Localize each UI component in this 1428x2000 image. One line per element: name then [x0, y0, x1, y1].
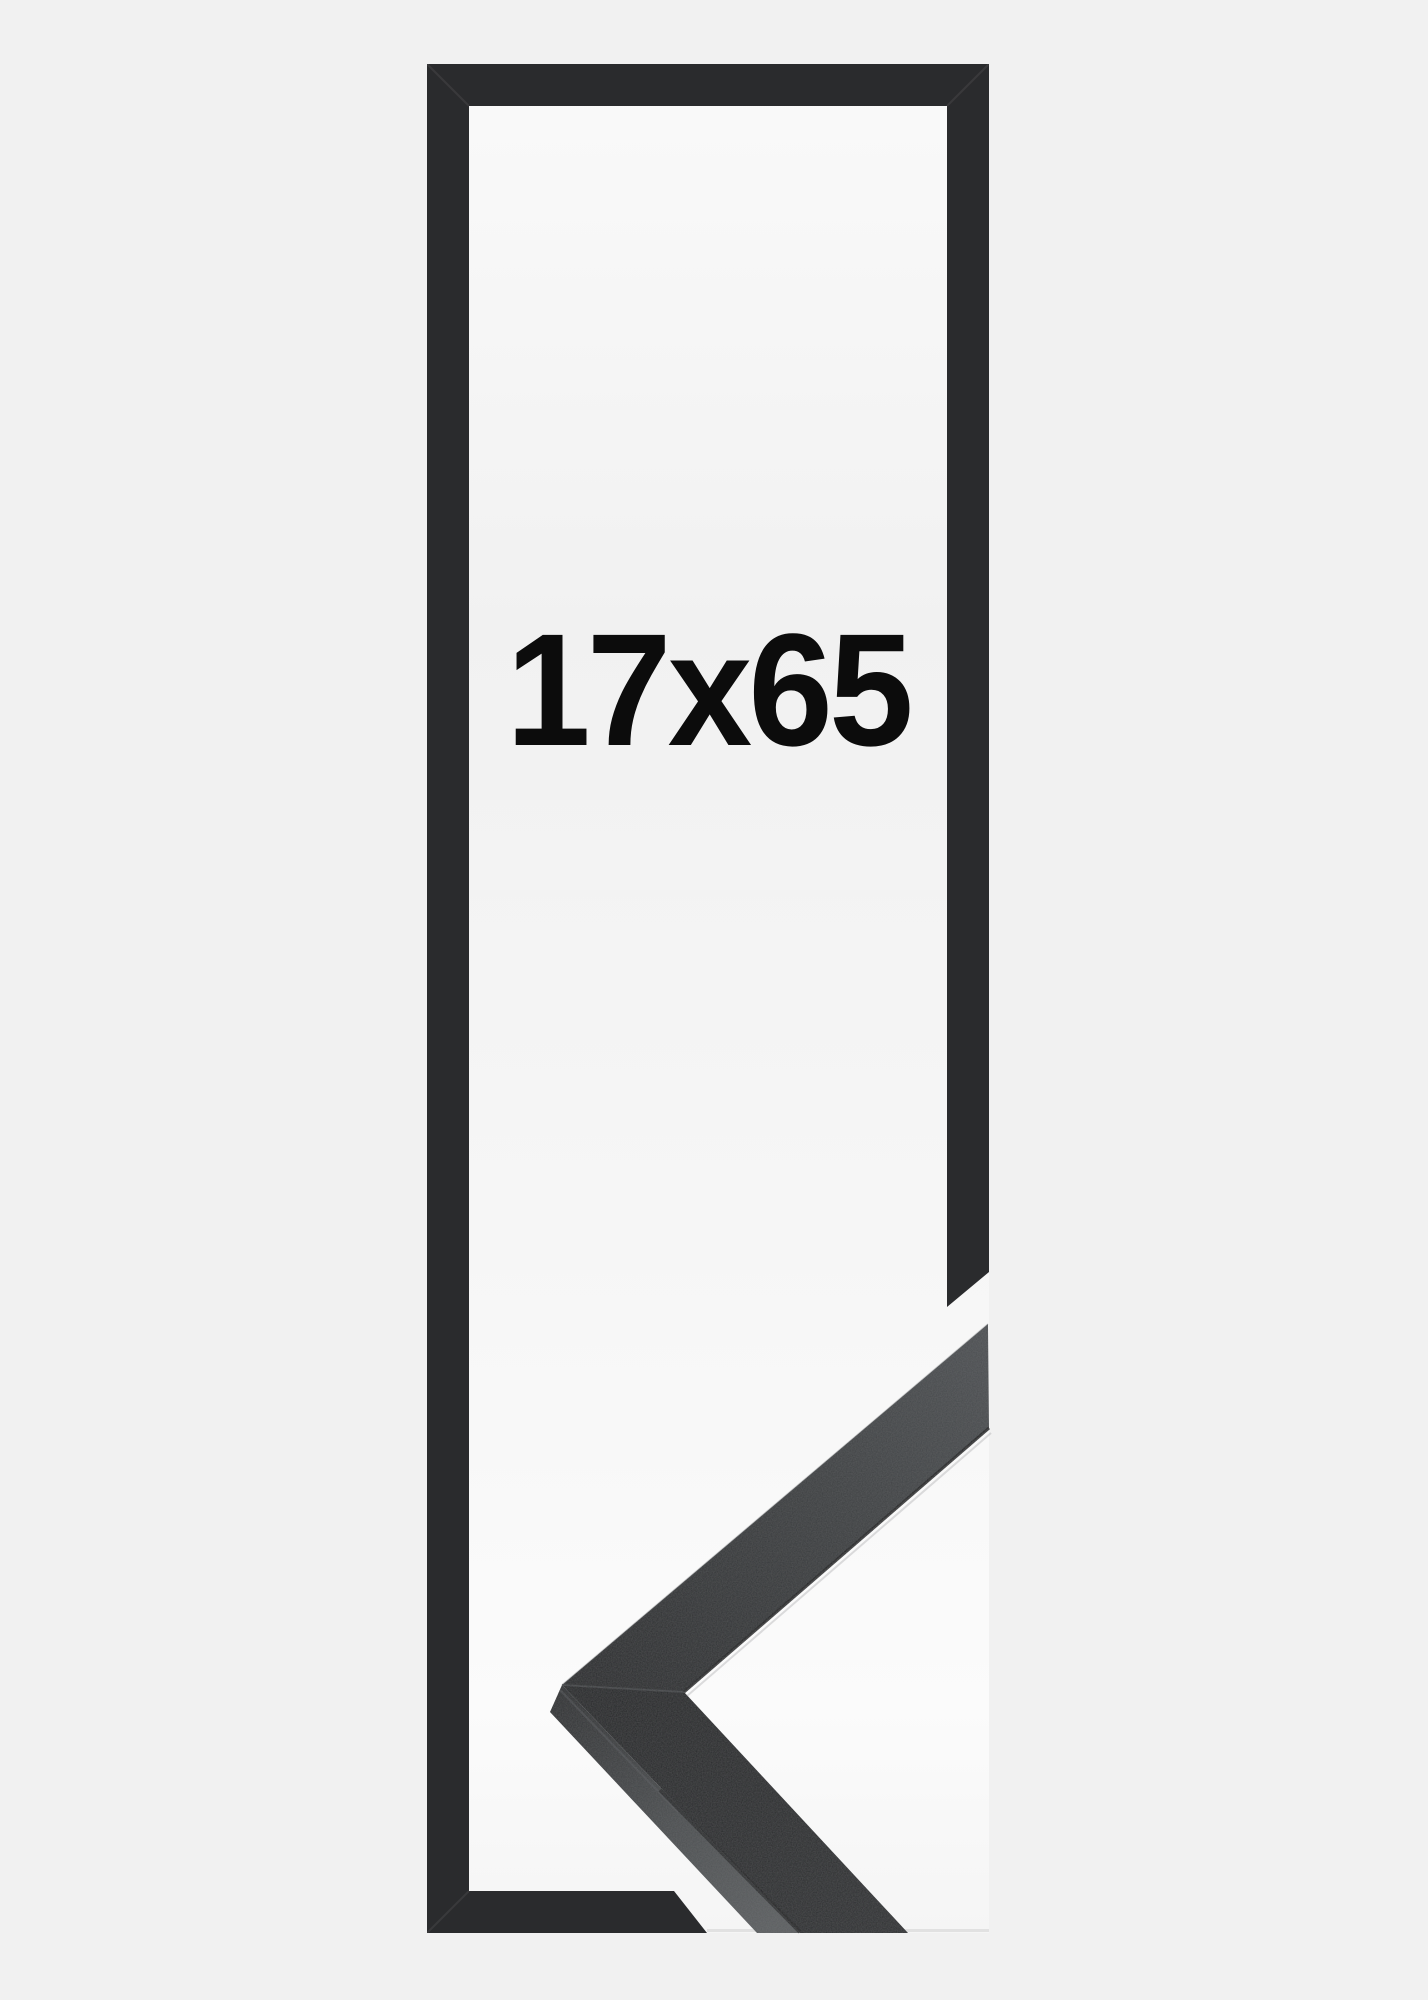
- frame-size-product-image: 17x65: [0, 0, 1428, 2000]
- frame-outline-top-bar: [427, 64, 989, 106]
- size-label: 17x65: [441, 610, 975, 770]
- frame-outline-bottom-bar: [427, 1891, 707, 1933]
- frame-outline-left-bar: [427, 64, 469, 1933]
- frame-outline-graphic: [0, 0, 1428, 2000]
